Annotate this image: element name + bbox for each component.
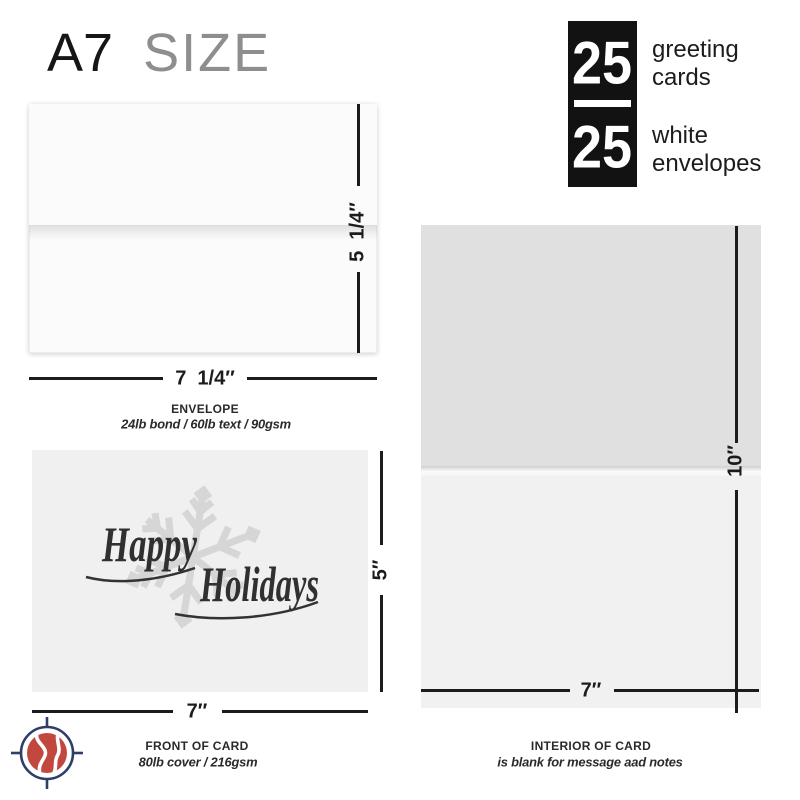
svg-text:Holidays: Holidays <box>199 556 319 612</box>
svg-text:Happy: Happy <box>101 516 197 572</box>
